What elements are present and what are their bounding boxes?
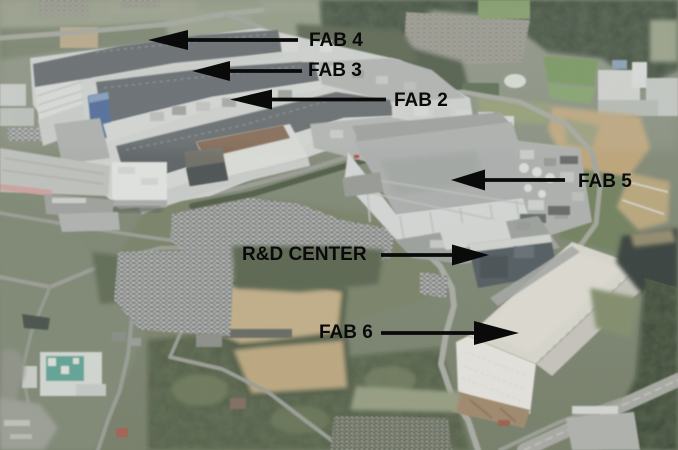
svg-text:R&D CENTER: R&D CENTER [242,244,367,265]
svg-text:FAB 4: FAB 4 [309,30,363,51]
svg-text:FAB 6: FAB 6 [319,322,373,343]
svg-text:FAB 5: FAB 5 [578,171,632,192]
svg-text:FAB 2: FAB 2 [394,90,448,111]
svg-text:FAB 3: FAB 3 [308,60,362,81]
